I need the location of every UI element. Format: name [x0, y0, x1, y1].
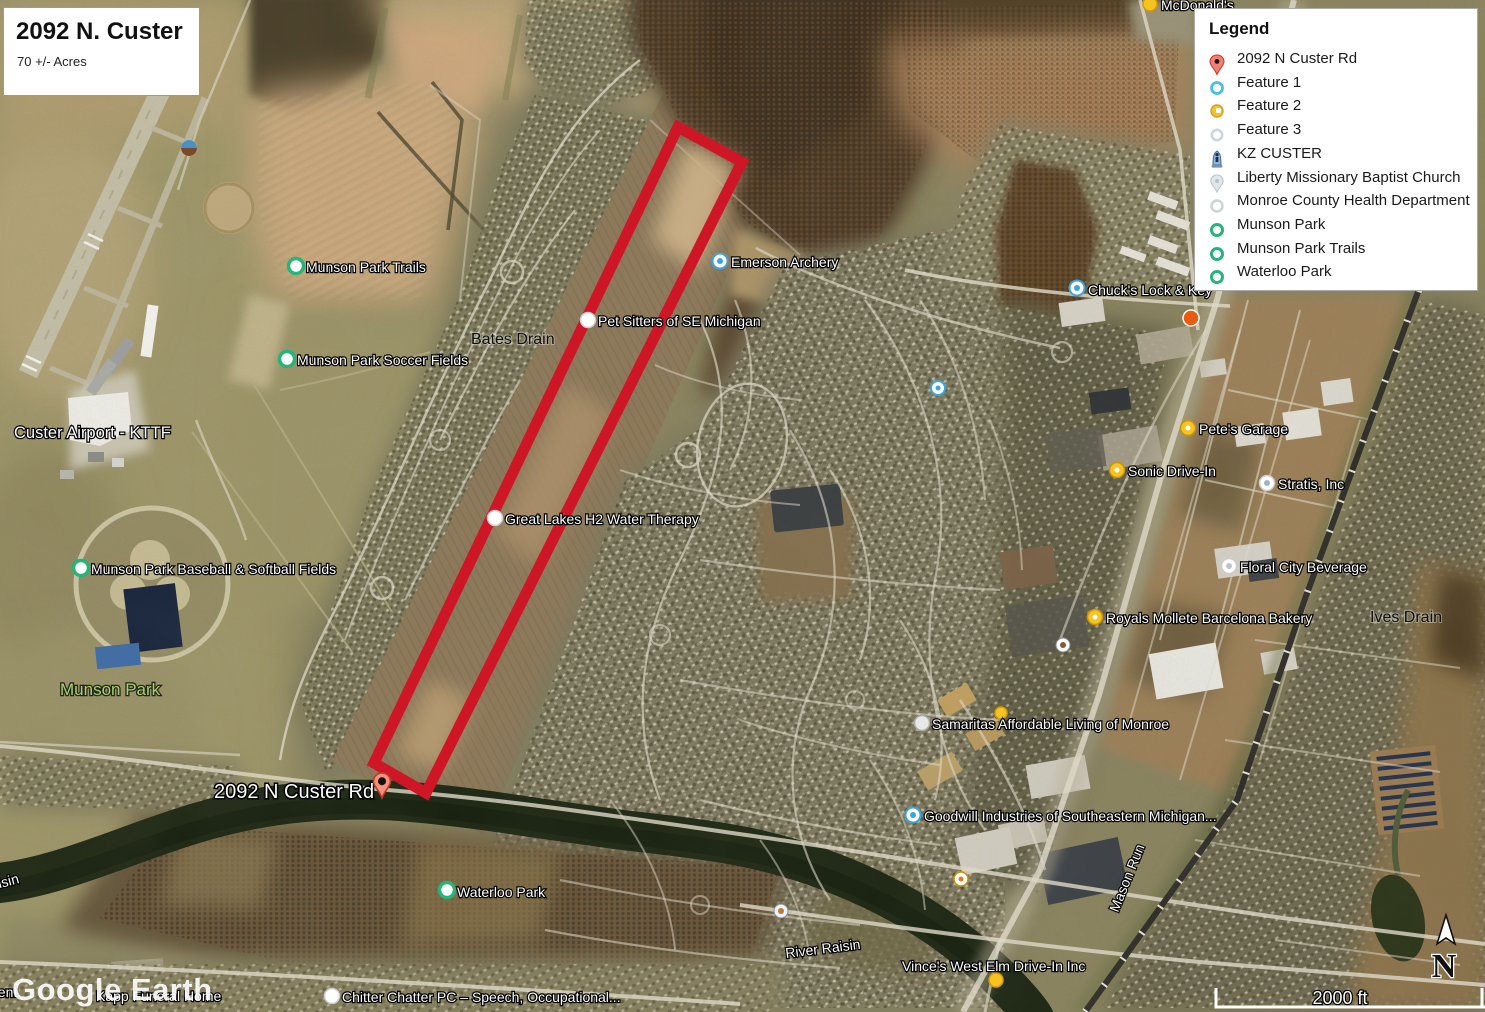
- svg-text:Great Lakes H2 Water Therapy: Great Lakes H2 Water Therapy: [505, 511, 699, 527]
- svg-text:N: N: [1432, 948, 1457, 985]
- svg-text:Google Earth: Google Earth: [12, 972, 213, 1007]
- svg-text:Pete's Garage: Pete's Garage: [1199, 421, 1288, 437]
- svg-text:Samaritas Affordable Living of: Samaritas Affordable Living of Monroe: [932, 716, 1169, 732]
- svg-text:Stratis, Inc: Stratis, Inc: [1278, 476, 1344, 492]
- svg-text:Pet Sitters of SE Michigan: Pet Sitters of SE Michigan: [598, 313, 761, 329]
- svg-text:Ives Drain: Ives Drain: [1370, 609, 1442, 626]
- svg-text:Emerson Archery: Emerson Archery: [731, 254, 838, 270]
- svg-text:Munson Park Baseball & Softbal: Munson Park Baseball & Softball Fields: [91, 561, 336, 577]
- svg-text:Custer Airport - KTTF: Custer Airport - KTTF: [14, 424, 171, 442]
- svg-text:2000 ft: 2000 ft: [1312, 988, 1367, 1008]
- svg-text:Munson Park Soccer Fields: Munson Park Soccer Fields: [297, 352, 468, 368]
- svg-text:Floral City Beverage: Floral City Beverage: [1240, 559, 1367, 575]
- svg-text:Waterloo Park: Waterloo Park: [457, 884, 546, 900]
- svg-text:Goodwill Industries of Southea: Goodwill Industries of Southeastern Mich…: [924, 808, 1217, 824]
- svg-text:Chitter Chatter PC – Speech, O: Chitter Chatter PC – Speech, Occupationa…: [342, 989, 621, 1005]
- svg-text:2092 N Custer Rd: 2092 N Custer Rd: [214, 781, 374, 803]
- svg-text:Munson Park: Munson Park: [60, 680, 161, 699]
- svg-text:Sonic Drive-In: Sonic Drive-In: [1128, 463, 1216, 479]
- svg-text:Royals Mollete Barcelona Baker: Royals Mollete Barcelona Bakery: [1106, 610, 1312, 626]
- svg-text:Vince's West Elm Drive-In Inc: Vince's West Elm Drive-In Inc: [902, 958, 1085, 974]
- svg-text:Munson Park Trails: Munson Park Trails: [306, 259, 426, 275]
- svg-text:Bates Drain: Bates Drain: [471, 331, 555, 348]
